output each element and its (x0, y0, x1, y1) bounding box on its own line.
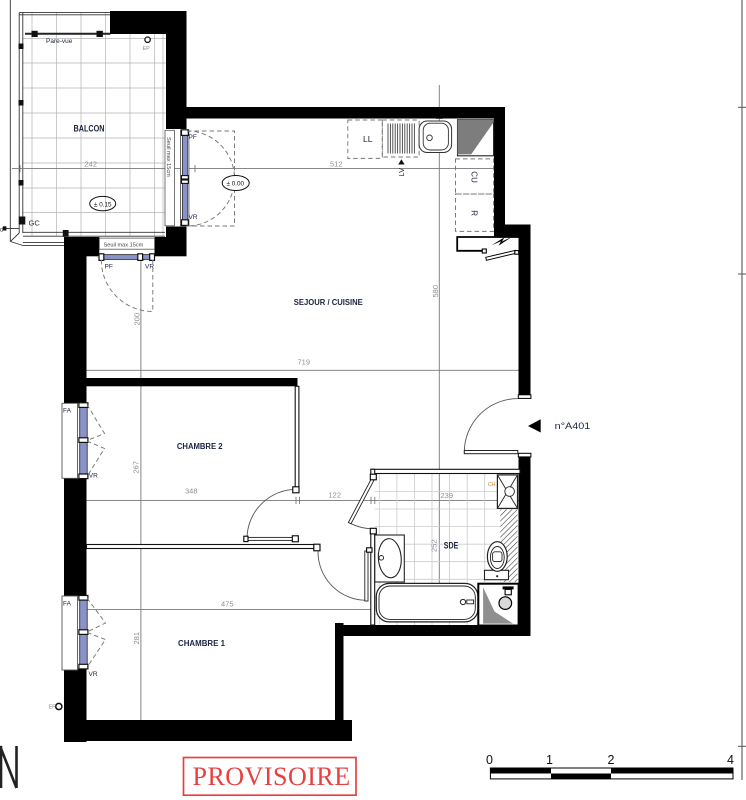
svg-text:Seuil max 15cm: Seuil max 15cm (165, 137, 171, 177)
svg-text:PF: PF (189, 134, 197, 141)
svg-text:n°A401: n°A401 (555, 421, 591, 432)
svg-text:± 0.00: ± 0.00 (227, 181, 245, 188)
svg-text:512: 512 (330, 160, 343, 169)
svg-text:0: 0 (486, 753, 493, 767)
svg-text:GC: GC (29, 219, 41, 228)
svg-text:VR: VR (89, 473, 98, 480)
svg-text:PROVISOIRE: PROVISOIRE (193, 762, 351, 791)
svg-text:FA: FA (63, 408, 72, 415)
svg-text:LL: LL (363, 134, 373, 144)
svg-text:239: 239 (441, 491, 454, 500)
svg-text:R: R (469, 210, 478, 216)
svg-text:FA: FA (63, 601, 72, 608)
svg-text:1: 1 (546, 753, 553, 767)
svg-text:348: 348 (185, 486, 198, 495)
svg-text:CHAMBRE 2: CHAMBRE 2 (177, 441, 223, 451)
svg-text:VR: VR (89, 671, 98, 678)
svg-text:CU: CU (469, 171, 478, 183)
svg-text:122: 122 (329, 490, 342, 499)
svg-text:SDE: SDE (444, 540, 459, 550)
svg-text:2: 2 (608, 753, 615, 767)
svg-text:BALCON: BALCON (74, 124, 105, 134)
svg-text:CHAMBRE 1: CHAMBRE 1 (178, 638, 225, 648)
svg-text:VR: VR (189, 214, 198, 221)
svg-text:200: 200 (133, 313, 142, 326)
svg-text:242: 242 (85, 160, 98, 169)
svg-text:580: 580 (431, 285, 440, 298)
svg-text:± 0.15: ± 0.15 (94, 201, 112, 208)
svg-text:475: 475 (221, 599, 234, 608)
svg-text:EP: EP (49, 705, 57, 711)
svg-text:281: 281 (132, 632, 141, 645)
svg-text:719: 719 (298, 358, 311, 367)
svg-text:d: d (0, 228, 3, 234)
svg-text:CH: CH (488, 482, 496, 488)
svg-text:Pare-vue: Pare-vue (46, 38, 73, 45)
svg-text:4: 4 (727, 753, 734, 767)
svg-text:SEJOUR / CUISINE: SEJOUR / CUISINE (294, 297, 363, 307)
svg-text:EP: EP (143, 46, 151, 52)
svg-text:Seuil max 15cm: Seuil max 15cm (104, 243, 144, 249)
svg-text:252: 252 (430, 539, 439, 552)
svg-text:LV: LV (397, 168, 406, 177)
svg-text:267: 267 (132, 461, 141, 474)
svg-text:PF: PF (105, 264, 113, 271)
